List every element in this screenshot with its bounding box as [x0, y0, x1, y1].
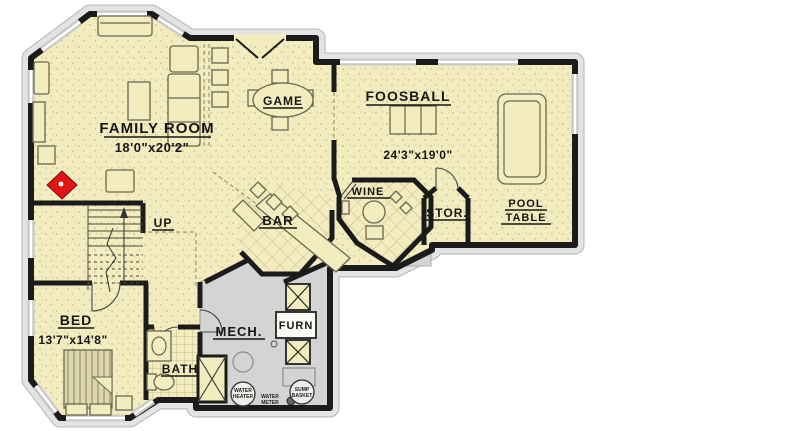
- pool-table: [498, 94, 546, 184]
- svg-text:HEATER: HEATER: [233, 394, 254, 400]
- bay-sofa: [98, 16, 152, 36]
- label-bath: BATH: [161, 362, 199, 376]
- game-chair: [272, 117, 288, 130]
- pillow: [66, 404, 87, 415]
- bath-text: BATH: [162, 362, 198, 376]
- side-table: [38, 146, 55, 164]
- game-chair: [272, 70, 288, 83]
- wine-chair: [366, 226, 383, 239]
- label-water-meter: WATER METER: [261, 394, 279, 406]
- pillow: [90, 404, 111, 415]
- family-room-text: FAMILY ROOM: [99, 120, 214, 137]
- counter-stool: [212, 92, 228, 107]
- vanity: [147, 331, 171, 361]
- label-sump-basket: SUMP BASKET: [292, 387, 313, 399]
- game-text: GAME: [263, 94, 303, 108]
- family-room-dims-text: 18'0"x20'2": [115, 140, 190, 155]
- duct-box: [286, 340, 310, 364]
- chase-closet: [198, 356, 226, 402]
- label-up: UP: [152, 216, 174, 230]
- floor-plan-drawing: FAMILY ROOM 18'0"x20'2" GAME FOOSBALL 24…: [0, 0, 800, 431]
- label-water-heater: WATER HEATER: [233, 388, 254, 400]
- stor-text: STOR.: [426, 206, 467, 220]
- chair: [106, 170, 134, 192]
- media-cabinet: [33, 102, 45, 142]
- nightstand: [116, 396, 132, 410]
- label-wine: WINE: [347, 186, 390, 198]
- wine-text: WINE: [352, 186, 385, 198]
- svg-text:METER: METER: [261, 400, 279, 406]
- label-rec-dims: 24'3"x19'0": [383, 148, 452, 162]
- label-furn: FURN: [279, 320, 314, 332]
- rec-dims-text: 24'3"x19'0": [383, 148, 452, 162]
- bed-text: BED: [60, 312, 93, 328]
- furn-text: FURN: [279, 320, 314, 332]
- table-text: TABLE: [506, 212, 547, 224]
- label-mech: MECH.: [213, 324, 265, 339]
- wine-table: [363, 201, 385, 223]
- loveseat: [170, 46, 198, 72]
- label-bar: BAR: [259, 213, 297, 228]
- coffee-table: [128, 82, 150, 120]
- armchair: [34, 62, 49, 94]
- label-game: GAME: [263, 94, 303, 108]
- pool-text: POOL: [508, 198, 543, 210]
- foosball-text: FOOSBALL: [366, 88, 451, 104]
- bar-text: BAR: [262, 213, 293, 228]
- label-foosball: FOOSBALL: [366, 88, 452, 105]
- counter-stool: [212, 48, 228, 63]
- bed-dims-text: 13'7"x14'8": [38, 333, 107, 347]
- duct-box: [286, 284, 310, 310]
- counter-stool: [212, 70, 228, 85]
- floor-plan-page: FAMILY ROOM 18'0"x20'2" GAME FOOSBALL 24…: [0, 0, 800, 431]
- svg-text:BASKET: BASKET: [292, 393, 313, 399]
- up-text: UP: [154, 216, 173, 230]
- label-stor: STOR.: [426, 206, 468, 220]
- mech-text: MECH.: [216, 324, 263, 339]
- foosball-table: [390, 106, 436, 134]
- wine-rack: [342, 201, 349, 214]
